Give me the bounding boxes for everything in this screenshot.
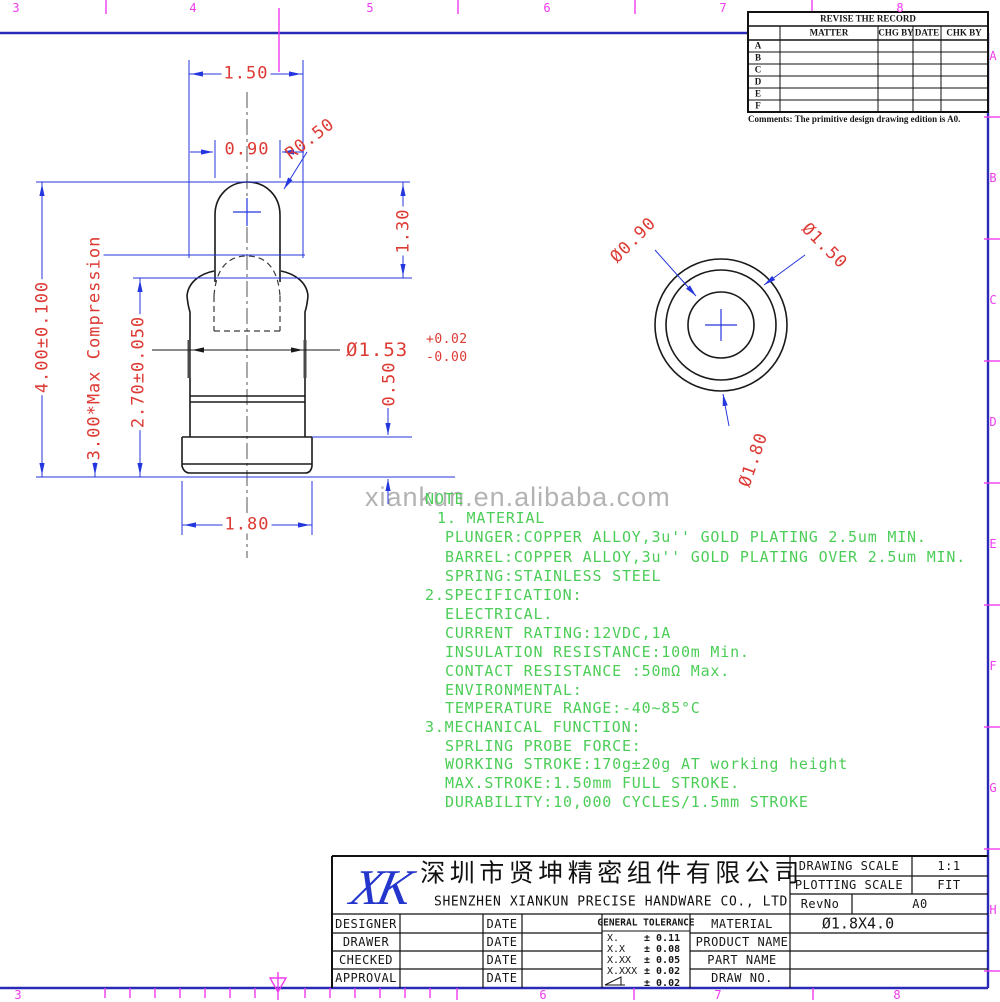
drawing-scale-label: DRAWING SCALE — [799, 860, 899, 872]
note-line: 1. MATERIAL — [437, 511, 545, 526]
zone-letter-right: B — [989, 172, 996, 184]
dim-barrel-dia: Ø1.53 — [344, 341, 410, 360]
zone-letter-right: D — [989, 416, 996, 428]
note-line: TEMPERATURE RANGE:-40~85°C — [445, 701, 701, 716]
tolerance-value: ± 0.05 — [644, 956, 680, 966]
note-line: ELECTRICAL. — [445, 607, 553, 622]
zone-letter-right: F — [989, 660, 996, 672]
note-line: SPRING:STAINLESS STEEL — [445, 569, 661, 584]
zone-number-bottom: 3 — [14, 989, 21, 1001]
revision-row-label: E — [755, 90, 761, 99]
revision-row-label: A — [755, 42, 762, 51]
revision-row-label: C — [755, 66, 762, 75]
dim-compressed-height: 3.00*Max Compression — [87, 234, 104, 463]
zone-number-top: 3 — [12, 2, 19, 14]
date-label: DATE — [487, 954, 518, 966]
revision-col-matter: MATTER — [810, 29, 849, 38]
zone-letter-right: H — [989, 904, 996, 916]
tolerance-key: X.XX — [607, 956, 631, 966]
note-line: CONTACT RESISTANCE :50mΩ Max. — [445, 664, 730, 679]
zone-letter-right: C — [989, 294, 996, 306]
material-field-label: MATERIAL — [711, 918, 773, 930]
note-line: WORKING STROKE:170g±20g AT working heigh… — [445, 757, 848, 772]
zone-letter-right: A — [989, 50, 996, 62]
note-line: PLUNGER:COPPER ALLOY,3u'' GOLD PLATING 2… — [445, 530, 927, 545]
dim-top-width: 1.50 — [222, 66, 271, 83]
date-label: DATE — [487, 936, 518, 948]
zone-number-top: 4 — [189, 2, 196, 14]
tolerance-key: X.XXX — [607, 967, 637, 977]
revision-row-label: D — [755, 78, 762, 87]
zone-number-bottom: 7 — [714, 989, 721, 1001]
dim-total-height: 4.00±0.100 — [35, 279, 52, 395]
company-name-en: SHENZHEN XIANKUN PRECISE HANDWARE CO., L… — [434, 896, 788, 909]
drawing-linework — [0, 0, 1000, 1000]
company-name-cn: 深圳市贤坤精密组件有限公司 — [420, 862, 804, 887]
dim-barrel-height: 2.70±0.050 — [131, 314, 148, 430]
tolerance-key: X.X — [607, 945, 625, 955]
zone-number-top: 6 — [543, 2, 550, 14]
tolerance-value: ± 0.02 — [644, 967, 680, 977]
company-logo: XK — [347, 862, 414, 912]
revision-table-title: REVISE THE RECORD — [820, 15, 916, 24]
zone-number-bottom: 8 — [893, 989, 900, 1001]
draw-no-field-label: DRAW NO. — [711, 972, 773, 984]
dim-plunger-width: 0.90 — [225, 142, 270, 159]
revision-comments: Comments: The primitive design drawing e… — [748, 115, 960, 124]
note-line: CURRENT RATING:12VDC,1A — [445, 626, 671, 641]
note-line: ENVIRONMENTAL: — [445, 683, 583, 698]
date-label: DATE — [487, 972, 518, 984]
tolerance-key: X. — [607, 934, 619, 944]
note-line: NOTE — [425, 492, 464, 507]
revision-col-date: DATE — [915, 29, 939, 38]
note-line: 3.MECHANICAL FUNCTION: — [425, 720, 641, 735]
note-line: BARREL:COPPER ALLOY,3u'' GOLD PLATING OV… — [445, 550, 966, 565]
plotting-scale-value: FIT — [937, 879, 960, 891]
tolerance-value: ± 0.02 — [644, 979, 680, 989]
date-label: DATE — [487, 918, 518, 930]
dim-exposed-height: 1.30 — [396, 207, 413, 256]
zone-number-top: 8 — [896, 2, 903, 14]
zone-number-top: 7 — [719, 2, 726, 14]
zone-letter-right: G — [989, 782, 996, 794]
tolerance-value: ± 0.11 — [644, 934, 680, 944]
note-line: DURABILITY:10,000 CYCLES/1.5mm STROKE — [445, 795, 809, 810]
note-line: INSULATION RESISTANCE:100m Min. — [445, 645, 750, 660]
dim-barrel-dia-tol-plus: +0.02 — [426, 333, 468, 346]
note-line: MAX.STROKE:1.50mm FULL STROKE. — [445, 776, 740, 791]
revision-col-chk-by: CHK BY — [946, 29, 981, 38]
revision-row-label: F — [755, 102, 761, 111]
plotting-scale-label: PLOTTING SCALE — [795, 879, 903, 891]
center-cross — [233, 198, 737, 341]
zone-letter-right: E — [989, 538, 996, 550]
dim-flange-height: 0.50 — [382, 362, 399, 407]
drawing-scale-value: 1:1 — [937, 860, 960, 872]
note-line: SPRLING PROBE FORCE: — [445, 739, 642, 754]
part-name-field-label: PART NAME — [707, 954, 777, 966]
checked-label: CHECKED — [339, 954, 393, 966]
tolerance-value: ± 0.08 — [644, 945, 680, 955]
revision-col-chg-by: CHG BY — [878, 29, 913, 38]
zone-number-bottom: 6 — [539, 989, 546, 1001]
dim-flange-width: 1.80 — [223, 517, 272, 534]
dim-barrel-dia-tol-minus: -0.00 — [426, 351, 468, 364]
revno-label: RevNo — [801, 898, 840, 910]
revno-value: A0 — [912, 898, 927, 910]
drawer-label: DRAWER — [343, 936, 389, 948]
material-value: Ø1.8X4.0 — [822, 917, 894, 932]
tolerance-header: GENERAL TOLERANCE — [597, 918, 694, 928]
product-name-field-label: PRODUCT NAME — [696, 936, 789, 948]
engineering-drawing-sheet: { "sheet": { "zone_numbers_top": ["3","4… — [0, 0, 1000, 1000]
revision-row-label: B — [755, 54, 761, 63]
approval-label: APPROVAL — [335, 972, 397, 984]
zone-number-top: 5 — [366, 2, 373, 14]
note-line: 2.SPECIFICATION: — [425, 588, 582, 603]
designer-label: DESIGNER — [335, 918, 397, 930]
